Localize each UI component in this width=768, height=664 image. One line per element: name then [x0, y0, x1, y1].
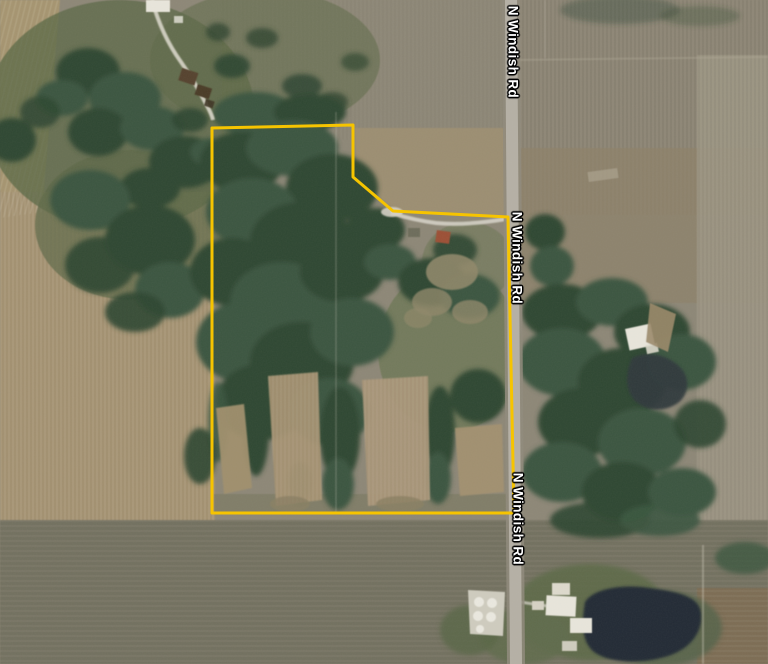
satellite-imagery — [0, 0, 768, 664]
map-canvas[interactable]: N Windish Rd N Windish Rd N Windish Rd — [0, 0, 768, 664]
grain-overlay — [0, 0, 768, 664]
